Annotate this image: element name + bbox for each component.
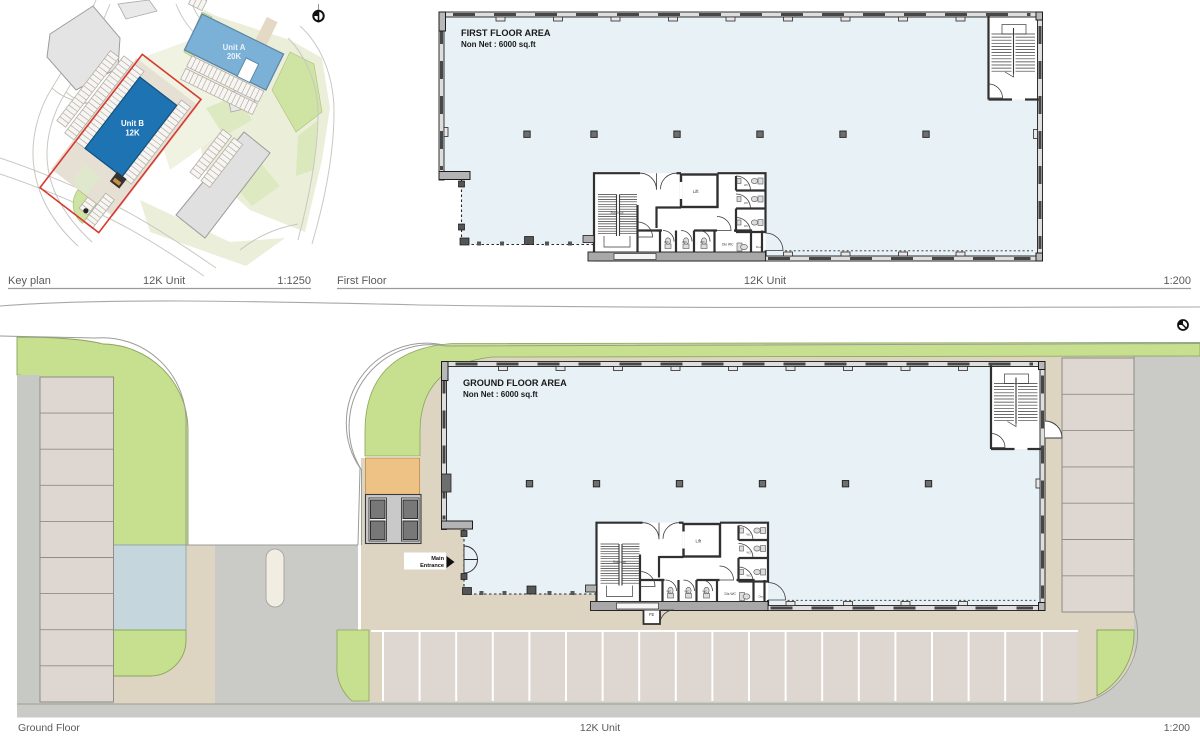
svg-text:Lift: Lift xyxy=(696,539,702,544)
svg-text:WC: WC xyxy=(747,533,751,537)
svg-text:WC: WC xyxy=(747,551,751,555)
svg-text:Non Net : 6000 sq.ft: Non Net : 6000 sq.ft xyxy=(461,40,536,49)
svg-text:Unit B: Unit B xyxy=(121,119,144,128)
svg-text:WC: WC xyxy=(703,590,708,594)
svg-text:Dis WC: Dis WC xyxy=(725,592,737,596)
svg-text:20K: 20K xyxy=(227,52,242,61)
svg-text:12K Unit: 12K Unit xyxy=(744,275,786,287)
svg-text:FIRST FLOOR AREA: FIRST FLOOR AREA xyxy=(461,28,551,38)
svg-text:12K: 12K xyxy=(125,129,140,138)
svg-text:WC: WC xyxy=(700,240,705,244)
svg-text:12K Unit: 12K Unit xyxy=(143,275,185,287)
svg-text:Non Net : 6000 sq.ft: Non Net : 6000 sq.ft xyxy=(463,390,538,399)
svg-text:WC: WC xyxy=(747,574,751,578)
svg-text:Dis WC: Dis WC xyxy=(722,243,734,247)
svg-text:12K Unit: 12K Unit xyxy=(580,722,620,734)
svg-text:First Floor: First Floor xyxy=(337,275,387,287)
svg-text:Duct: Duct xyxy=(759,595,765,599)
svg-text:WC: WC xyxy=(744,201,748,205)
svg-text:Unit A: Unit A xyxy=(223,43,246,52)
svg-text:Key plan: Key plan xyxy=(8,275,51,287)
svg-text:Main: Main xyxy=(431,556,444,562)
svg-text:WC: WC xyxy=(685,590,690,594)
svg-text:FE: FE xyxy=(649,612,655,617)
svg-text:1:200: 1:200 xyxy=(1164,722,1190,734)
svg-text:Staircase: Staircase xyxy=(613,560,627,564)
svg-text:WC: WC xyxy=(744,224,748,228)
svg-text:WC: WC xyxy=(664,240,669,244)
svg-text:Lift: Lift xyxy=(693,189,699,194)
svg-text:Ground Floor: Ground Floor xyxy=(18,722,80,734)
svg-text:WC: WC xyxy=(744,183,748,187)
svg-text:WC: WC xyxy=(667,590,672,594)
svg-text:1:200: 1:200 xyxy=(1163,275,1191,287)
svg-text:Duct: Duct xyxy=(756,245,762,249)
svg-text:WC: WC xyxy=(682,240,687,244)
svg-text:1:1250: 1:1250 xyxy=(277,275,311,287)
svg-text:Staircase: Staircase xyxy=(610,211,624,215)
svg-text:GROUND FLOOR AREA: GROUND FLOOR AREA xyxy=(463,378,567,388)
svg-text:Entrance: Entrance xyxy=(420,563,444,569)
